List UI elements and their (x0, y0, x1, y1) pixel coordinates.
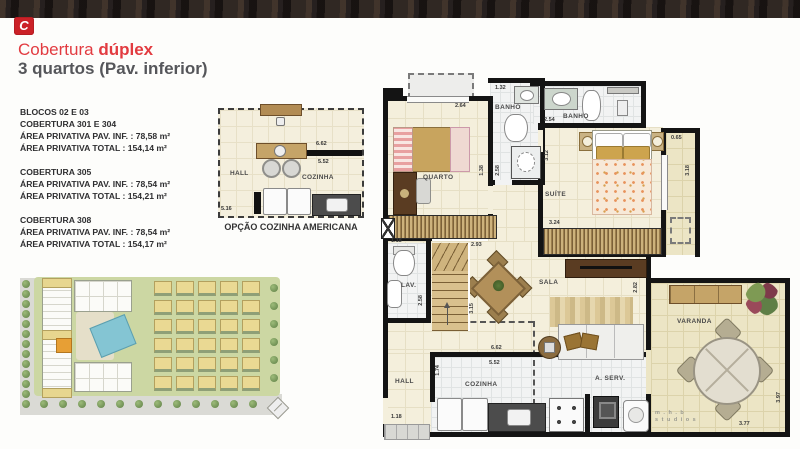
dim-label: 1.38 (479, 165, 485, 176)
wall (383, 318, 431, 323)
tree-icon (270, 356, 278, 364)
unit-info-block-3: COBERTURA 308 ÁREA PRIVATIVA PAV. INF. :… (20, 214, 215, 250)
apartment-block (42, 282, 72, 334)
kitchen-option-caption: OPÇÃO COZINHA AMERICANA (216, 222, 366, 232)
dim-label: 3.12 (544, 150, 550, 161)
tree-icon (22, 350, 30, 358)
sink-icon (544, 88, 578, 110)
shower-icon (511, 146, 541, 179)
cabinet-icon (462, 398, 488, 431)
dim-label: 1.32 (495, 85, 506, 91)
studio-watermark-line2: s t u d i o s (655, 417, 697, 424)
tree-icon (270, 302, 278, 310)
tree-icon (22, 280, 30, 288)
single-bed (393, 127, 470, 172)
dim-label: 5.52 (489, 360, 500, 366)
i (520, 90, 534, 101)
house (176, 281, 194, 296)
plant-icon (745, 282, 780, 316)
tree-icon (22, 400, 30, 408)
tree-icon (135, 400, 143, 408)
accent-pillow (623, 146, 650, 160)
house (220, 281, 238, 296)
house (198, 300, 216, 315)
tree-icon (192, 400, 200, 408)
label-cozinha: COZINHA (465, 381, 497, 388)
house (242, 376, 260, 391)
unit-line: ÁREA PRIVATIVA TOTAL : 154,17 m² (20, 238, 215, 250)
patio-table (693, 337, 761, 405)
kitchen-option-wall (254, 192, 261, 214)
dim-label: 0.65 (671, 135, 682, 141)
i (491, 278, 507, 294)
dim-label: 3.15 (469, 303, 475, 314)
house (154, 300, 172, 315)
house (154, 281, 172, 296)
unit-line: ÁREA PRIVATIVA PAV. INF. : 78,54 m² (20, 226, 215, 238)
door-opening (383, 398, 388, 424)
i (444, 302, 450, 308)
house (220, 300, 238, 315)
house (154, 376, 172, 391)
dim-label: 2.58 (418, 295, 424, 306)
tree-icon (40, 400, 48, 408)
towel-bar-icon (607, 87, 639, 94)
blanket (450, 127, 470, 172)
laundry-tank-icon (623, 400, 649, 432)
unit-info-list: BLOCOS 02 E 03 COBERTURA 301 E 304 ÁREA … (20, 106, 215, 262)
bench (669, 285, 742, 304)
label-lav: LAV. (401, 282, 416, 289)
duvet (592, 159, 652, 215)
i (580, 266, 632, 269)
tree-icon (270, 320, 278, 328)
toilet-icon (504, 114, 528, 142)
apartment-block (74, 362, 132, 392)
tree-icon (270, 284, 278, 292)
wall (426, 241, 431, 321)
window (407, 96, 469, 103)
unit-info-block-2: COBERTURA 305 ÁREA PRIVATIVA PAV. INF. :… (20, 166, 215, 202)
label-hall: HALL (230, 170, 249, 177)
open-plan-guide (533, 321, 535, 405)
fridge-icon (263, 188, 287, 215)
entry-steps (384, 424, 430, 440)
brand-logo-letter: C (19, 18, 28, 33)
bar-stool-icon (262, 159, 281, 178)
tree-icon (22, 380, 30, 388)
door-opening (488, 186, 493, 214)
house (198, 357, 216, 372)
label-varanda: VARANDA (677, 318, 712, 325)
unit-line: COBERTURA 305 (20, 166, 215, 178)
tree-icon (22, 370, 30, 378)
house (242, 300, 260, 315)
tree-icon (270, 338, 278, 346)
c2 (614, 325, 615, 358)
side-table (538, 336, 561, 359)
house (198, 338, 216, 353)
floor-hall (387, 353, 431, 433)
kitchen-sink-icon (326, 198, 348, 212)
tree-icon (22, 330, 30, 338)
shaft-icon (381, 218, 395, 239)
bar-sink-icon (274, 145, 286, 157)
tree-icon (22, 360, 30, 368)
label-banho2: BANHO (563, 113, 589, 120)
house (198, 319, 216, 334)
page-title-bold: dúplex (98, 40, 153, 59)
dim-label: 2.93 (471, 242, 482, 248)
door-opening (495, 180, 512, 185)
dim-label: 2.82 (633, 282, 639, 293)
staircase-winders (432, 243, 468, 271)
i (517, 152, 535, 172)
tree-icon (78, 400, 86, 408)
label-quarto: QUARTO (423, 174, 453, 181)
unit-line: BLOCOS 02 E 03 (20, 106, 215, 118)
dim-label: 2.54 (544, 117, 555, 123)
sofa-pillow (580, 333, 599, 351)
house (154, 319, 172, 334)
cabinet-icon (287, 188, 311, 215)
wall (641, 81, 646, 128)
dim-label: 3.18 (685, 165, 691, 176)
unit-line: ÁREA PRIVATIVA TOTAL : 154,14 m² (20, 142, 215, 154)
i (274, 403, 282, 411)
sofa (558, 324, 644, 360)
label-hall: HALL (395, 378, 414, 385)
tree-icon (22, 290, 30, 298)
sink-icon (387, 280, 402, 308)
house (220, 357, 238, 372)
unit-info-block-1: BLOCOS 02 E 03 COBERTURA 301 E 304 ÁREA … (20, 106, 215, 154)
end-unit (42, 278, 72, 288)
studio-watermark-line1: m . h . b (655, 410, 697, 417)
dim-label: 3.24 (549, 220, 560, 226)
i (652, 136, 663, 147)
bar-stool-icon (282, 159, 301, 178)
dim-label: 3.77 (739, 421, 750, 427)
stove-icon (549, 398, 584, 432)
dim-label: 5.52 (318, 159, 329, 165)
rug (550, 297, 633, 327)
studio-watermark: m . h . b s t u d i o s (655, 410, 697, 424)
sink-icon (514, 86, 539, 104)
house (154, 338, 172, 353)
dim-label: 1.18 (391, 238, 402, 244)
wall (585, 394, 590, 437)
house (176, 357, 194, 372)
kitchen-option-plan: HALL COZINHA 6.62 5.52 5.16 OPÇÃO COZINH… (216, 104, 366, 239)
house (242, 281, 260, 296)
label-sala: SALA (539, 279, 558, 286)
floor-plan: QUARTO BANHO BANHO SUÍTE LAV. SALA HALL … (383, 60, 797, 442)
wall (383, 96, 388, 437)
tree-icon (270, 374, 278, 382)
unit-line: ÁREA PRIVATIVA PAV. INF. : 78,54 m² (20, 178, 215, 190)
label-suite: SUÍTE (545, 191, 566, 198)
highlighted-unit (56, 338, 72, 353)
house (242, 338, 260, 353)
dim-label: 6.62 (316, 141, 327, 147)
label-cozinha: COZINHA (302, 174, 334, 181)
unit-line: ÁREA PRIVATIVA TOTAL : 154,21 m² (20, 190, 215, 202)
wall (695, 128, 700, 257)
i (400, 189, 409, 198)
unit-line: COBERTURA 301 E 304 (20, 118, 215, 130)
page-subtitle: 3 quartos (Pav. inferior) (18, 59, 208, 79)
washer-icon (593, 396, 619, 428)
dim-label: 1.18 (391, 414, 402, 420)
tree-icon (22, 310, 30, 318)
unit-line: COBERTURA 308 (20, 214, 215, 226)
house (176, 376, 194, 391)
door-opening (646, 350, 651, 394)
kitchen-counter (488, 403, 546, 432)
balcony-detail-outline (670, 217, 691, 244)
dim-label: 5.16 (221, 206, 232, 212)
chair (416, 178, 431, 204)
brand-logo-icon: C (14, 17, 34, 35)
apartment-block (74, 280, 132, 312)
wall (785, 278, 790, 437)
house (198, 376, 216, 391)
house (242, 357, 260, 372)
dim-label: 1.74 (435, 365, 441, 376)
dim-label: 3.97 (776, 392, 782, 403)
wall (530, 81, 646, 86)
wardrobe-suite (543, 228, 662, 255)
toilet-icon (393, 250, 415, 276)
house (220, 319, 238, 334)
pillow (393, 127, 413, 172)
dim-label: 6.62 (491, 345, 502, 351)
header-wood-bar (0, 0, 800, 18)
tree-icon (22, 340, 30, 348)
tree-icon (22, 320, 30, 328)
house (176, 319, 194, 334)
tree-icon (173, 400, 181, 408)
i (507, 409, 531, 426)
unit-line: ÁREA PRIVATIVA PAV. INF. : 78,58 m² (20, 130, 215, 142)
desk (393, 172, 417, 215)
tree-icon (22, 300, 30, 308)
page-title: Cobertura dúplex (18, 40, 153, 60)
wardrobe-quarto (388, 215, 497, 239)
house (242, 319, 260, 334)
i (599, 402, 616, 419)
tree-icon (154, 400, 162, 408)
shower-icon (617, 100, 628, 116)
tree-icon (22, 390, 30, 398)
i (544, 342, 555, 353)
tree-icon (249, 400, 257, 408)
tv-console (565, 259, 647, 278)
label-banho1: BANHO (495, 104, 521, 111)
kitchen-option-shelf (260, 104, 302, 116)
house (220, 338, 238, 353)
tree-icon (59, 400, 67, 408)
page-title-normal: Cobertura (18, 40, 98, 59)
wall (538, 123, 646, 128)
house (154, 357, 172, 372)
i (552, 92, 571, 106)
i (628, 407, 644, 423)
kitchen-option-stool-icon (276, 117, 285, 126)
window (661, 155, 668, 210)
dim-label: 2.58 (495, 165, 501, 176)
accent-pillow (596, 146, 623, 160)
house (198, 281, 216, 296)
tree-icon (230, 400, 238, 408)
house (176, 338, 194, 353)
house (220, 376, 238, 391)
dim-label: 2.64 (455, 103, 466, 109)
tree-icon (97, 400, 105, 408)
site-plan (20, 272, 296, 424)
house (176, 300, 194, 315)
end-unit (42, 388, 72, 398)
brochure-page: C Cobertura dúplex 3 quartos (Pav. infer… (0, 0, 800, 449)
double-bed (592, 130, 652, 214)
stair-direction-arrow-icon (447, 307, 448, 325)
kitchen-option-wall (304, 150, 362, 156)
tree-icon (116, 400, 124, 408)
label-aserv: A. SERV. (595, 375, 625, 382)
tree-icon (211, 400, 219, 408)
fridge-icon (437, 398, 462, 431)
